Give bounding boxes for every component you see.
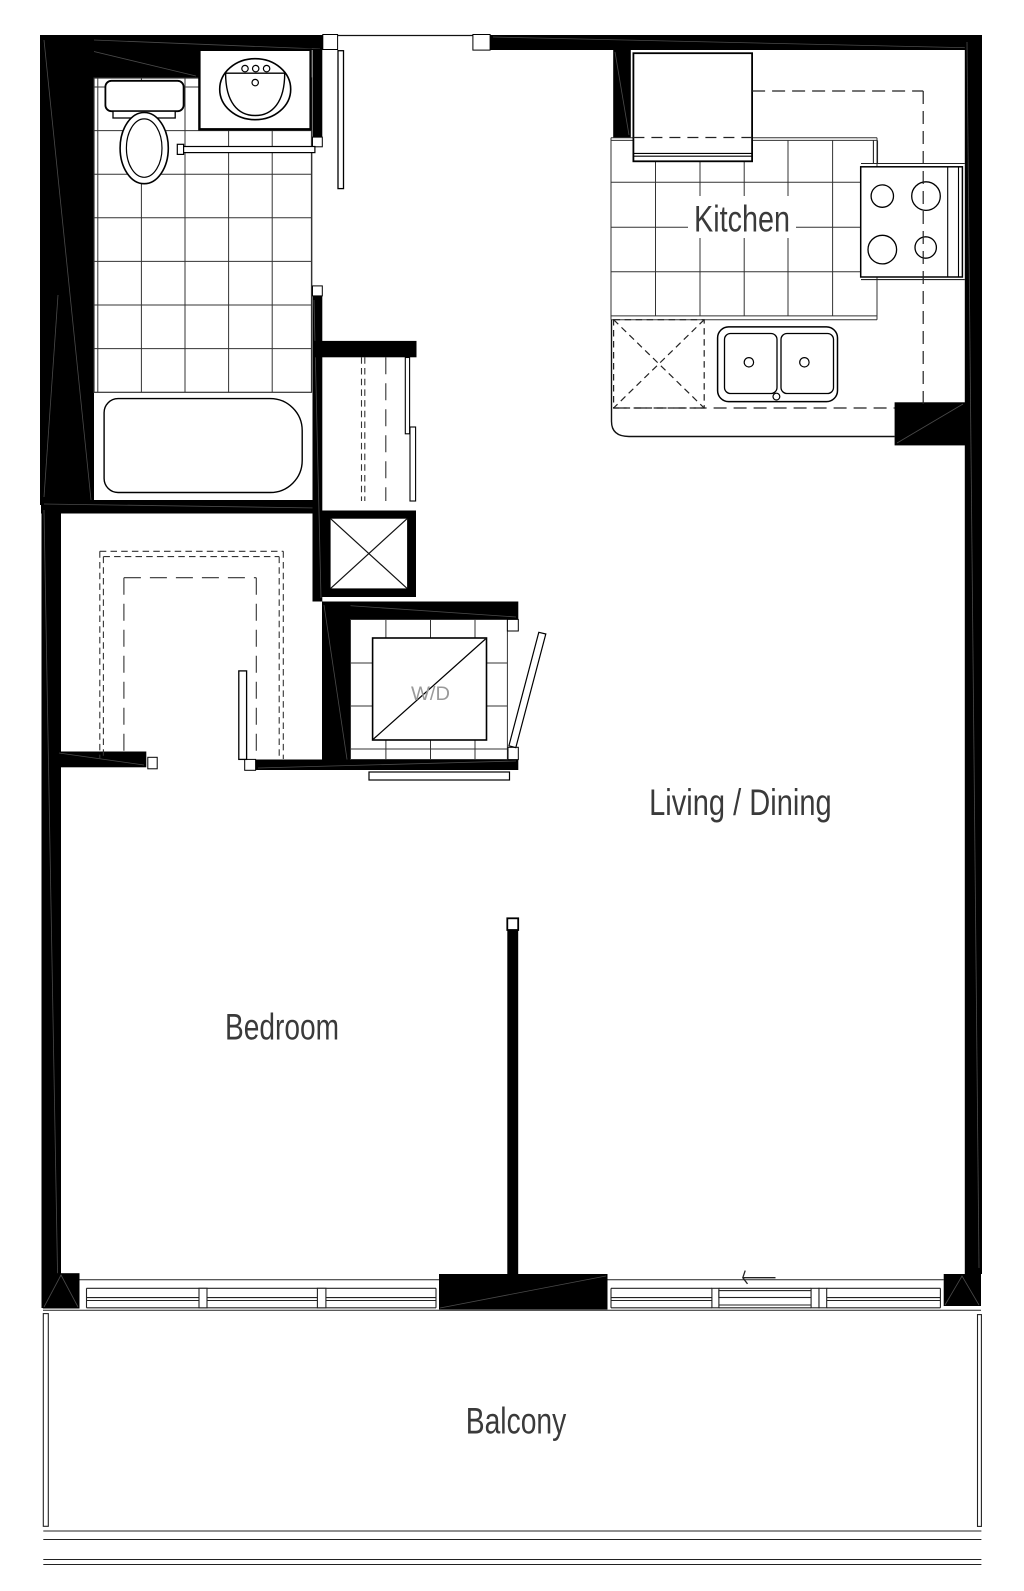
svg-text:W/D: W/D (411, 683, 450, 705)
svg-text:Balcony: Balcony (466, 1401, 567, 1442)
svg-text:Bedroom: Bedroom (225, 1007, 339, 1048)
svg-text:Kitchen: Kitchen (694, 199, 790, 240)
svg-text:Living / Dining: Living / Dining (649, 782, 832, 823)
